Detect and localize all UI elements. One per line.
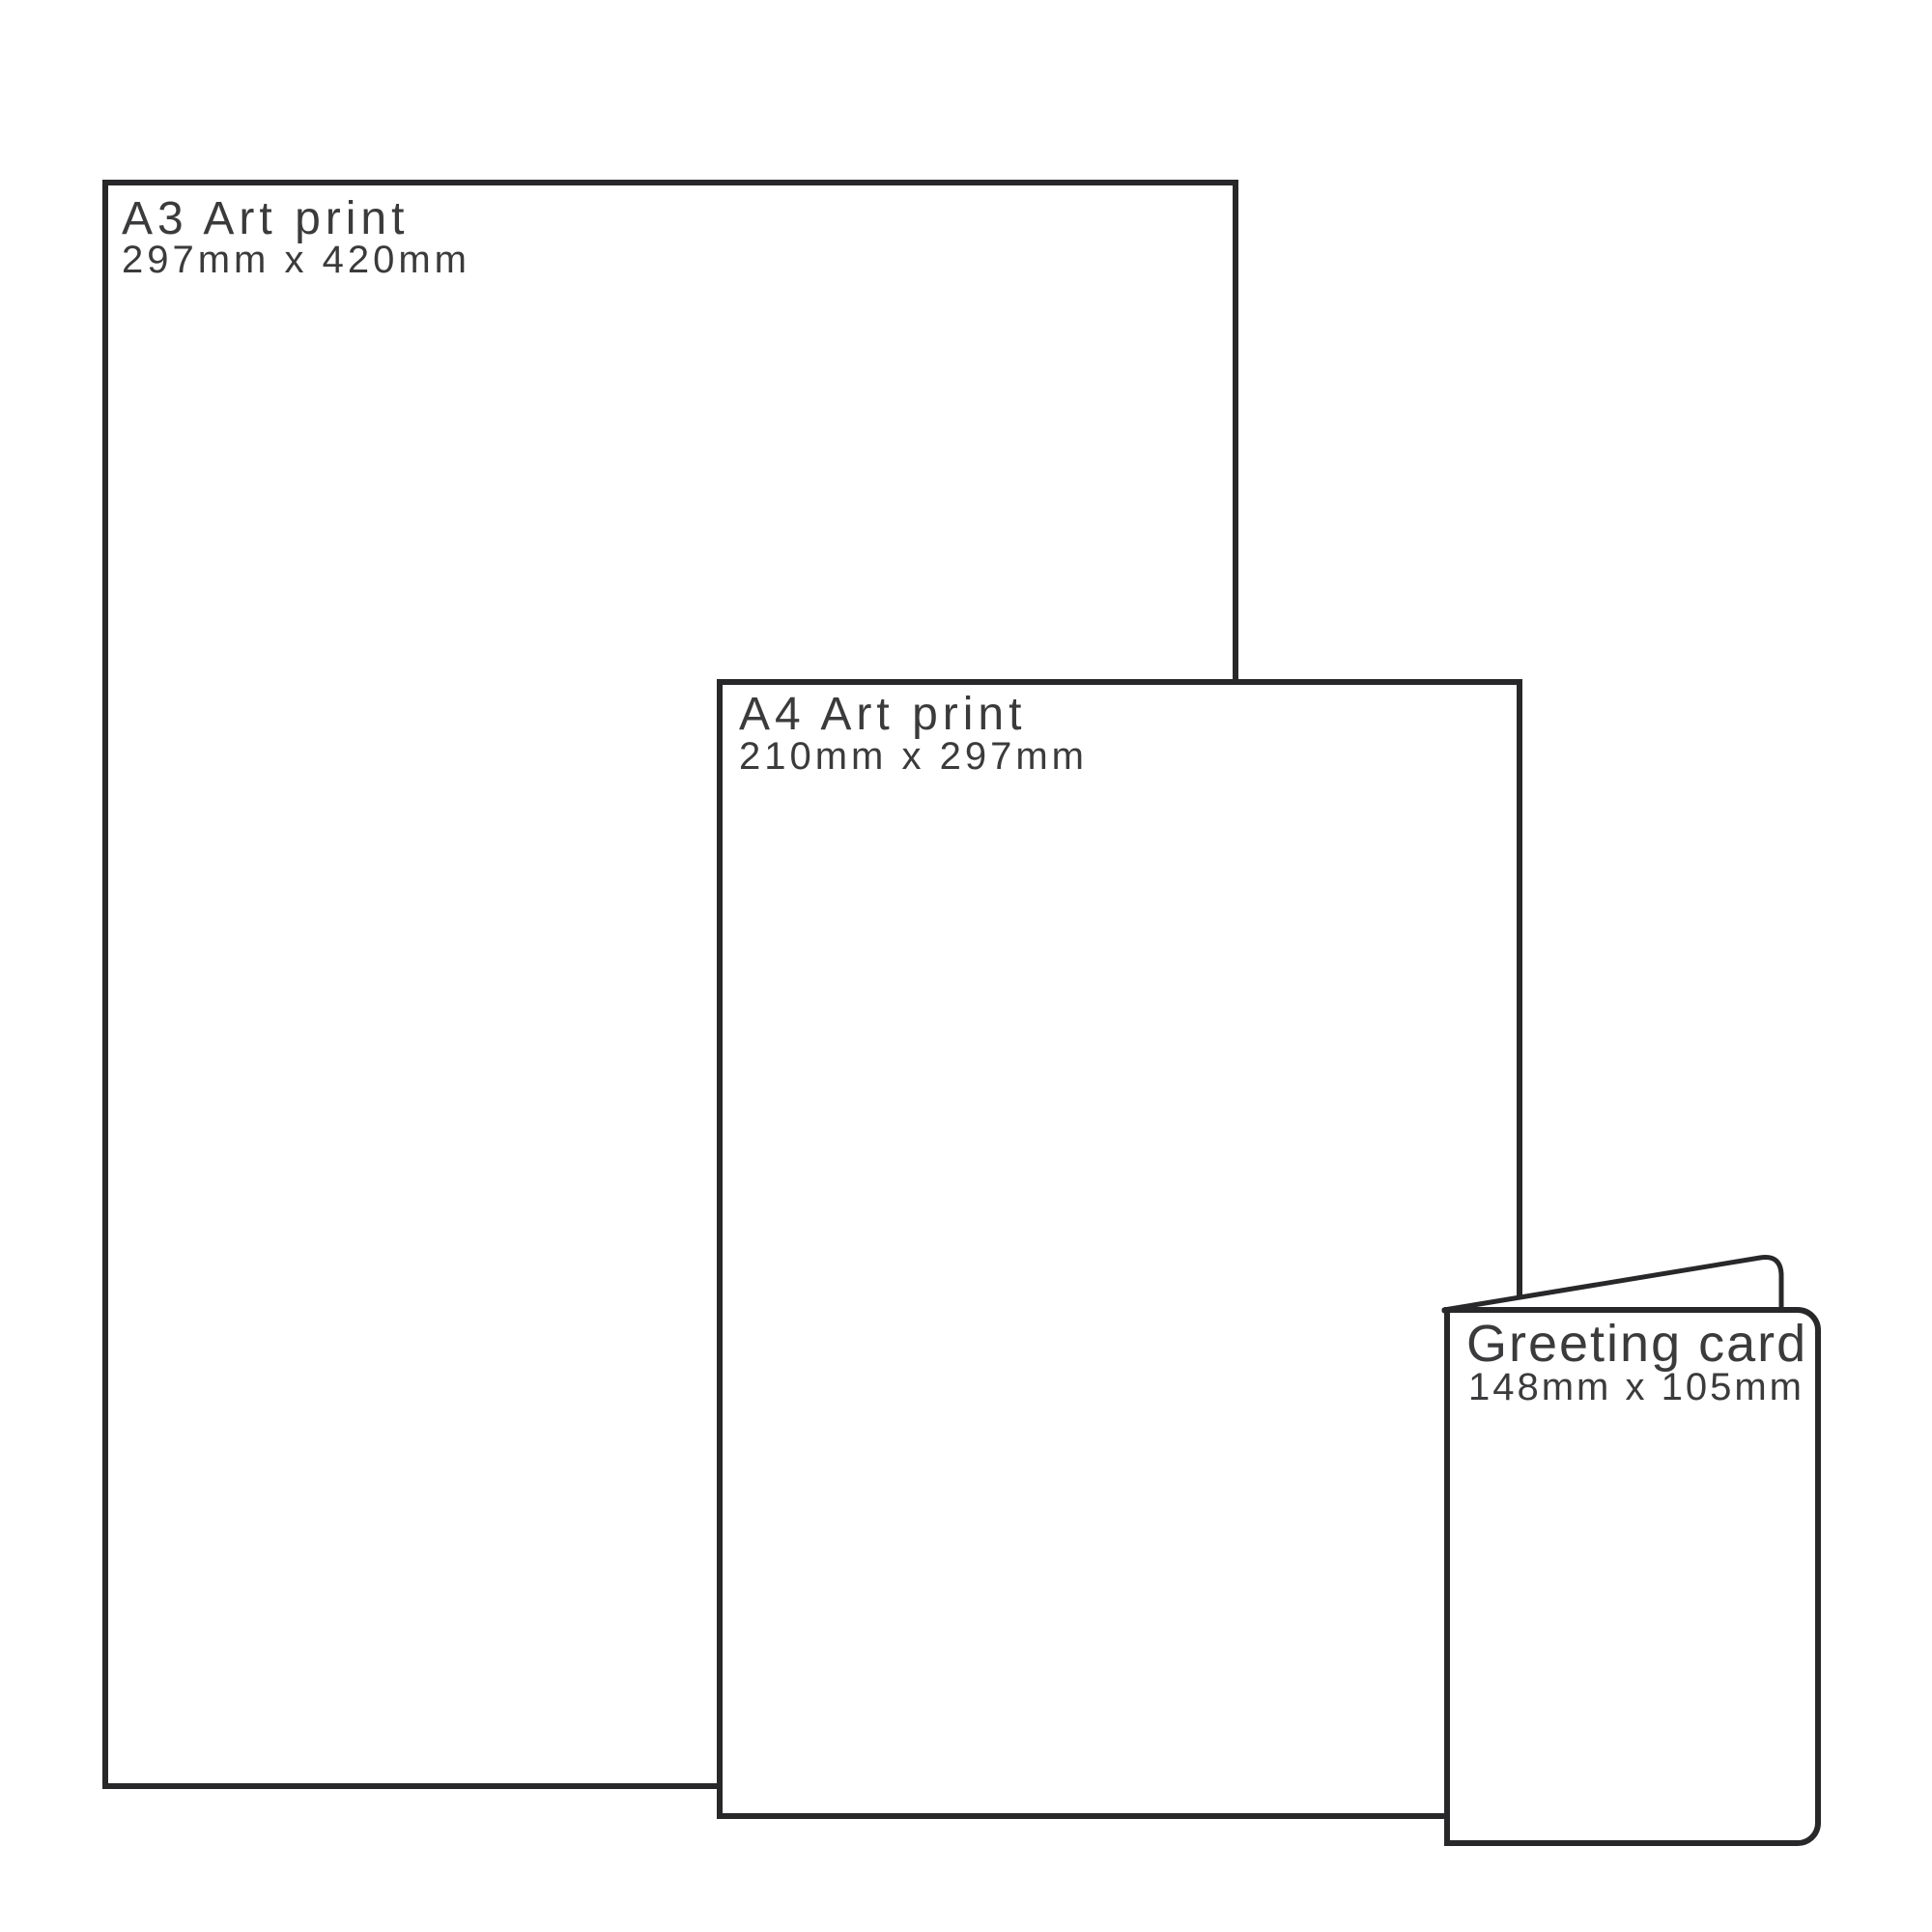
a3-title: A3 Art print [122, 196, 409, 242]
size-comparison-diagram: A3 Art print 297mm x 420mm A4 Art print … [0, 0, 1932, 1932]
a4-print-outline [717, 679, 1522, 1819]
greeting-card-dimensions: 148mm x 105mm [1468, 1368, 1804, 1406]
greeting-card-title: Greeting card [1466, 1318, 1807, 1370]
a4-dimensions: 210mm x 297mm [739, 737, 1088, 776]
a4-title: A4 Art print [739, 692, 1026, 738]
a3-dimensions: 297mm x 420mm [122, 241, 470, 279]
